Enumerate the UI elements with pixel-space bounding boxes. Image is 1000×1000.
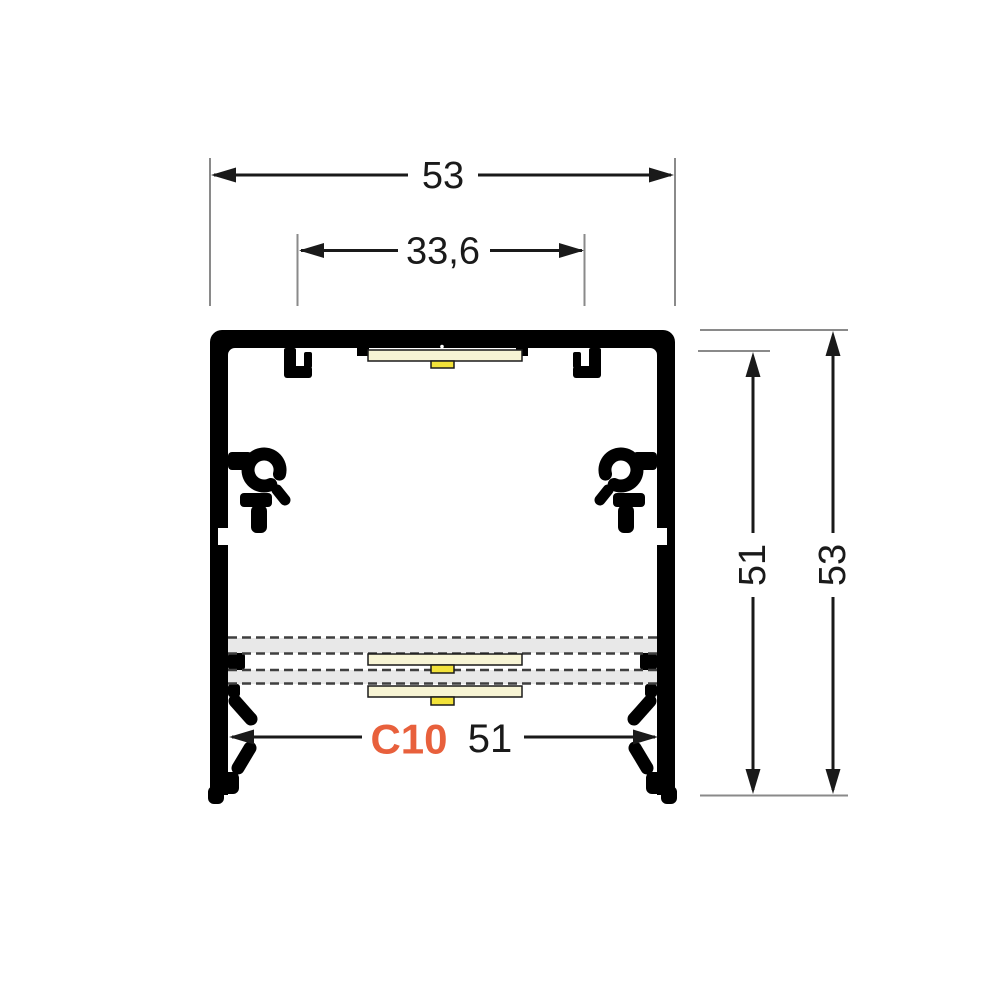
foot-right-tip [661,786,677,804]
screw-boss-left [228,452,285,533]
arrow-down [826,769,841,794]
ledge-right-upper [640,653,657,670]
arrow-up [826,331,841,356]
dimension-opening-width: 33,6 [298,231,585,307]
strip-slot-step-left [357,348,369,356]
bottom-width-value: 51 [468,717,513,761]
diffuser-band-upper [228,638,657,653]
dimension-outer-height: 53 [700,330,854,796]
mounting-hook-left [284,348,312,378]
foot-left-tip [208,786,224,804]
ledge-left-upper [228,653,245,670]
diffuser-options [228,638,657,706]
mounting-hook-right [573,348,601,378]
led-strip-top [368,345,522,368]
arrow-left [229,730,254,745]
inner-height-value: 51 [732,544,774,586]
outer-height-value: 53 [812,544,854,586]
ledge-right-lower [645,684,657,697]
arrow-right [559,243,584,258]
screw-mark [440,345,444,349]
led-strip-lower [368,686,522,705]
wall-notch-right [655,528,667,545]
ledge-left-lower [228,684,240,697]
dimension-inner-height: 51 [698,351,774,794]
screw-boss-right [600,452,657,533]
arrow-up [746,352,761,377]
outer-width-value: 53 [422,155,464,197]
profile-drawing: 53 33,6 51 53 C10 51 [0,0,1000,1000]
arrow-left [211,168,236,183]
arrow-down [746,769,761,794]
drawing-canvas: 53 33,6 51 53 C10 51 [0,0,1000,1000]
dimension-bottom-width: C10 51 [229,716,658,763]
opening-width-value: 33,6 [406,231,480,273]
product-code-label: C10 [370,716,447,763]
arrow-left [299,243,324,258]
arrow-right [633,730,658,745]
wall-notch-left [218,528,230,545]
arrow-right [649,168,674,183]
